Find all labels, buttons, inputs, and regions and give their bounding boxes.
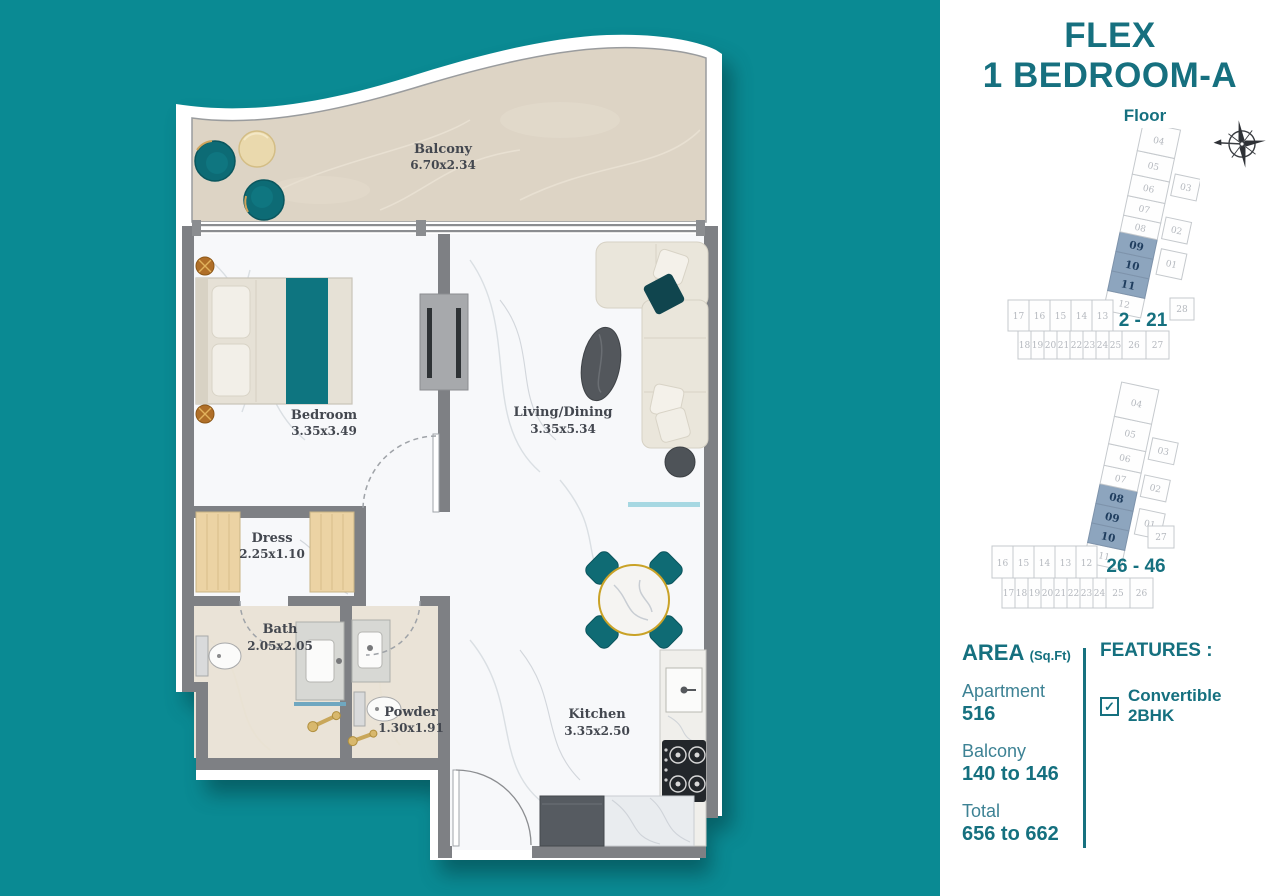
svg-text:14: 14 xyxy=(1076,312,1088,322)
area-item-balcony: Balcony 140 to 146 xyxy=(962,740,1082,786)
apartment-floor-plan: Balcony 6.70x2.34 Bedroom 3.35x3.49 Livi… xyxy=(0,0,940,896)
wardrobe xyxy=(196,512,240,592)
bed xyxy=(196,278,352,404)
feature-convertible-2bhk: ✓ Convertible 2BHK xyxy=(1100,686,1272,726)
balcony-table xyxy=(239,131,275,167)
svg-text:20: 20 xyxy=(1042,589,1054,599)
features-section: FEATURES : ✓ Convertible 2BHK xyxy=(1100,640,1272,726)
svg-text:21: 21 xyxy=(1058,341,1069,351)
floorplate-26-46: 11 10 09 08 07 06 05 04 03 02 01 16 15 1… xyxy=(990,370,1192,626)
svg-text:17: 17 xyxy=(1003,589,1015,599)
svg-text:23: 23 xyxy=(1081,589,1093,599)
balcony-chair xyxy=(244,180,284,220)
features-heading: FEATURES : xyxy=(1100,640,1272,662)
svg-text:15: 15 xyxy=(1055,312,1067,322)
svg-text:27: 27 xyxy=(1155,533,1167,543)
bedroom-dims: 3.35x3.49 xyxy=(291,424,357,438)
area-heading: AREA (Sq.Ft) xyxy=(962,640,1082,666)
svg-text:23: 23 xyxy=(1084,341,1096,351)
ottoman-stool xyxy=(665,447,695,477)
svg-text:16: 16 xyxy=(1034,312,1046,322)
svg-text:24: 24 xyxy=(1097,341,1109,351)
area-unit: (Sq.Ft) xyxy=(1030,648,1071,663)
dress-label: Dress xyxy=(251,531,292,546)
info-panel: FLEX 1 BEDROOM-A Floor 12 11 10 xyxy=(940,0,1280,896)
floor-range-2: 26 - 46 xyxy=(1106,556,1165,577)
glass-partition xyxy=(628,502,700,507)
svg-text:28: 28 xyxy=(1176,305,1188,315)
kitchen-label: Kitchen xyxy=(568,707,626,722)
area-item-total: Total 656 to 662 xyxy=(962,800,1082,846)
powder-dims: 1.30x1.91 xyxy=(378,721,444,735)
balcony-window xyxy=(192,220,705,236)
title-line2: 1 BEDROOM-A xyxy=(940,56,1280,96)
floorplate-2-21: 12 11 10 09 08 07 06 05 04 03 02 01 17 1… xyxy=(1002,128,1200,370)
svg-text:26: 26 xyxy=(1128,341,1140,351)
svg-text:26: 26 xyxy=(1136,589,1148,599)
floor-range-1: 2 - 21 xyxy=(1119,310,1168,331)
bath-label: Bath xyxy=(263,622,298,637)
bath-vanity xyxy=(294,622,346,706)
svg-text:14: 14 xyxy=(1039,559,1051,569)
svg-text:13: 13 xyxy=(1060,559,1072,569)
living-dims: 3.35x5.34 xyxy=(530,422,596,436)
feature-label: Convertible 2BHK xyxy=(1128,686,1272,726)
svg-text:22: 22 xyxy=(1068,589,1079,599)
title-line1: FLEX xyxy=(940,16,1280,56)
appliance xyxy=(540,796,604,846)
svg-text:22: 22 xyxy=(1071,341,1082,351)
nightstand xyxy=(196,405,214,423)
checkbox-checked-icon: ✓ xyxy=(1100,697,1119,716)
compass-rose-icon xyxy=(1212,112,1270,176)
svg-text:27: 27 xyxy=(1152,341,1164,351)
bedroom-label: Bedroom xyxy=(291,408,358,423)
kitchen-dims: 3.35x2.50 xyxy=(564,724,630,738)
svg-text:24: 24 xyxy=(1094,589,1106,599)
balcony-chair xyxy=(195,141,235,181)
living-label: Living/Dining xyxy=(513,405,612,420)
tv-unit xyxy=(420,294,468,390)
balcony-label: Balcony xyxy=(414,142,472,157)
svg-text:12: 12 xyxy=(1081,559,1092,569)
svg-text:19: 19 xyxy=(1029,589,1041,599)
svg-text:20: 20 xyxy=(1045,341,1057,351)
svg-text:19: 19 xyxy=(1032,341,1044,351)
dress-dims: 2.25x1.10 xyxy=(239,547,305,561)
svg-text:13: 13 xyxy=(1097,312,1109,322)
plan-panel: Balcony 6.70x2.34 Bedroom 3.35x3.49 Livi… xyxy=(0,0,940,896)
floorplan-brochure: Balcony 6.70x2.34 Bedroom 3.35x3.49 Livi… xyxy=(0,0,1280,896)
svg-text:18: 18 xyxy=(1016,589,1028,599)
svg-text:16: 16 xyxy=(997,559,1009,569)
svg-text:17: 17 xyxy=(1013,312,1025,322)
svg-text:15: 15 xyxy=(1018,559,1030,569)
nightstand xyxy=(196,257,214,275)
powder-sink xyxy=(352,620,390,682)
balcony-dims: 6.70x2.34 xyxy=(410,158,476,172)
kitchen-bottom-counter xyxy=(604,796,694,846)
svg-text:25: 25 xyxy=(1110,341,1122,351)
powder-label: Powder xyxy=(384,705,438,720)
area-section: AREA (Sq.Ft) Apartment 516 Balcony 140 t… xyxy=(962,640,1082,846)
svg-text:25: 25 xyxy=(1112,589,1124,599)
page-title: FLEX 1 BEDROOM-A xyxy=(940,16,1280,96)
floor-heading: Floor xyxy=(1090,106,1200,126)
wardrobe xyxy=(310,512,354,592)
stove xyxy=(662,740,706,802)
section-divider xyxy=(1083,648,1086,848)
svg-text:21: 21 xyxy=(1055,589,1066,599)
svg-text:18: 18 xyxy=(1019,341,1031,351)
area-item-apartment: Apartment 516 xyxy=(962,680,1082,726)
dining-set xyxy=(583,549,685,651)
bath-dims: 2.05x2.05 xyxy=(247,639,313,653)
